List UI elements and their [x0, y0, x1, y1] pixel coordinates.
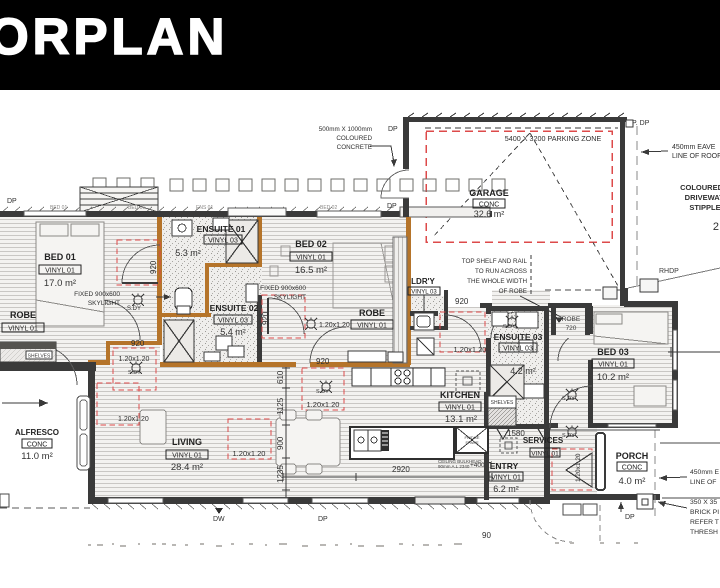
svg-text:COLOURED: COLOURED	[680, 183, 720, 192]
svg-text:LIVING: LIVING	[172, 437, 202, 447]
svg-text:CONC: CONC	[27, 442, 48, 449]
svg-text:90mm A.L 2340: 90mm A.L 2340	[438, 464, 470, 469]
svg-text:CONC: CONC	[479, 202, 500, 209]
svg-text:VINYL 01: VINYL 01	[8, 326, 38, 333]
svg-text:DP: DP	[625, 514, 635, 521]
svg-text:CONCRETE: CONCRETE	[337, 144, 372, 151]
svg-text:S.DY: S.DY	[127, 306, 141, 312]
svg-text:16.5 m²: 16.5 m²	[295, 265, 327, 276]
svg-text:+400: +400	[470, 462, 485, 469]
svg-text:1580: 1580	[507, 429, 525, 438]
svg-text:2920: 2920	[392, 465, 410, 474]
svg-text:SHELVES: SHELVES	[28, 354, 51, 360]
svg-text:DP: DP	[388, 126, 398, 133]
svg-text:500mm X 1000mm: 500mm X 1000mm	[319, 126, 372, 133]
svg-text:32.6 m²: 32.6 m²	[474, 209, 505, 219]
svg-text:BRICK PI: BRICK PI	[690, 509, 719, 516]
svg-text:DP: DP	[387, 203, 397, 210]
svg-text:90: 90	[482, 531, 491, 540]
svg-text:P. DP: P. DP	[632, 120, 650, 127]
svg-text:GARAGE: GARAGE	[469, 188, 509, 198]
svg-text:350 X 35: 350 X 35	[690, 499, 717, 506]
svg-text:VINYL 03: VINYL 03	[411, 290, 437, 296]
svg-text:5400 X 3200 PARKING ZONE: 5400 X 3200 PARKING ZONE	[505, 134, 602, 143]
svg-text:CONC: CONC	[622, 465, 643, 472]
svg-text:BED 01: BED 01	[44, 252, 76, 262]
svg-text:S.DY: S.DY	[316, 389, 329, 395]
svg-text:BED 03: BED 03	[597, 347, 629, 357]
svg-text:KITCHEN: KITCHEN	[440, 390, 480, 400]
svg-text:S.DY: S.DY	[503, 324, 516, 330]
svg-text:FIXED 900x600: FIXED 900x600	[260, 285, 306, 292]
svg-text:11.0 m²: 11.0 m²	[21, 451, 53, 462]
svg-text:COLOURED: COLOURED	[336, 135, 372, 142]
svg-text:DRIVEWAY: DRIVEWAY	[685, 193, 720, 202]
svg-text:LINE OF ROOF: LINE OF ROOF	[672, 153, 720, 160]
svg-text:VINYL 03: VINYL 03	[218, 318, 248, 325]
svg-text:920: 920	[149, 260, 158, 274]
svg-text:720: 720	[566, 325, 577, 332]
svg-text:THRESH: THRESH	[690, 529, 718, 536]
svg-text:2: 2	[713, 221, 719, 233]
svg-text:ROBE: ROBE	[10, 310, 36, 320]
svg-text:DP: DP	[318, 516, 328, 523]
svg-text:VINYL 03: VINYL 03	[503, 346, 533, 353]
svg-text:VINYL 01: VINYL 01	[491, 475, 521, 482]
svg-text:PORCH: PORCH	[616, 451, 649, 461]
svg-text:THE WHOLE WIDTH: THE WHOLE WIDTH	[467, 278, 527, 285]
svg-text:17.0 m²: 17.0 m²	[44, 278, 76, 289]
svg-text:RHDP: RHDP	[659, 268, 679, 275]
svg-text:BED 02: BED 02	[295, 239, 327, 249]
svg-text:1.20x1.20: 1.20x1.20	[119, 356, 150, 363]
svg-text:LINE OF: LINE OF	[690, 479, 716, 486]
svg-text:1.20x1.20: 1.20x1.20	[307, 400, 340, 409]
svg-text:SHELVES: SHELVES	[491, 400, 514, 406]
svg-text:920: 920	[261, 311, 270, 325]
svg-text:VINYL 01: VINYL 01	[45, 268, 75, 275]
svg-text:DP: DP	[7, 198, 17, 205]
svg-text:1.20x1.20: 1.20x1.20	[575, 453, 582, 482]
svg-text:ORPLAN: ORPLAN	[0, 8, 228, 65]
svg-text:ENSUITE 01: ENSUITE 01	[197, 224, 246, 234]
svg-text:VINYL 01: VINYL 01	[445, 405, 475, 412]
svg-text:ENSUITE 03: ENSUITE 03	[494, 332, 543, 342]
svg-text:450mm E: 450mm E	[690, 469, 720, 476]
svg-text:1235: 1235	[276, 465, 285, 483]
svg-text:TOP SHELF AND RAIL: TOP SHELF AND RAIL	[462, 258, 528, 265]
svg-text:BED 01: BED 01	[50, 205, 67, 211]
svg-text:1.20x1.20: 1.20x1.20	[233, 449, 266, 458]
svg-text:ENSUITE 02: ENSUITE 02	[210, 303, 259, 313]
svg-text:4.2 m²: 4.2 m²	[510, 366, 536, 376]
svg-text:S.DY: S.DY	[562, 396, 575, 402]
svg-text:VINYL 01: VINYL 01	[531, 451, 559, 458]
svg-text:920: 920	[131, 339, 145, 348]
svg-text:ROBE: ROBE	[359, 308, 385, 318]
svg-text:ROBE: ROBE	[562, 316, 581, 323]
svg-text:1.20x1.20: 1.20x1.20	[118, 416, 149, 423]
svg-text:ALFRESCO: ALFRESCO	[15, 428, 59, 437]
svg-text:LDR'Y: LDR'Y	[411, 277, 435, 286]
svg-text:VINYL 01: VINYL 01	[296, 255, 326, 262]
svg-text:BED 01: BED 01	[128, 205, 145, 211]
svg-text:900: 900	[276, 436, 285, 450]
svg-text:TO RUN ACROSS: TO RUN ACROSS	[475, 268, 527, 275]
svg-text:10.2 m²: 10.2 m²	[597, 372, 629, 383]
svg-text:S.DY: S.DY	[562, 433, 575, 439]
svg-text:VINYL 01: VINYL 01	[172, 453, 202, 460]
svg-text:ENTRY: ENTRY	[490, 461, 519, 471]
svg-text:ENS 01: ENS 01	[196, 205, 213, 211]
svg-text:1125: 1125	[276, 397, 285, 415]
svg-text:REFER T: REFER T	[690, 519, 719, 526]
svg-text:6.2 m²: 6.2 m²	[493, 484, 519, 494]
svg-text:450mm EAVE: 450mm EAVE	[672, 144, 716, 151]
svg-text:920: 920	[316, 357, 330, 366]
svg-text:OF ROBE: OF ROBE	[499, 288, 527, 295]
svg-text:4.0 m²: 4.0 m²	[619, 476, 646, 487]
svg-text:VINYL 01: VINYL 01	[357, 323, 387, 330]
svg-text:5.4 m²: 5.4 m²	[220, 327, 246, 337]
svg-text:28.4 m²: 28.4 m²	[171, 462, 203, 473]
svg-text:SKYLIGHT: SKYLIGHT	[88, 300, 120, 307]
svg-text:SKYLIGHT: SKYLIGHT	[274, 294, 306, 301]
svg-text:1.20x1.20: 1.20x1.20	[454, 345, 487, 354]
svg-text:DW: DW	[213, 516, 225, 523]
svg-text:610: 610	[276, 370, 285, 384]
svg-text:S.DY: S.DY	[128, 370, 141, 376]
svg-text:5.3 m²: 5.3 m²	[175, 248, 201, 258]
svg-text:920: 920	[455, 297, 469, 306]
svg-text:STIPPLED: STIPPLED	[689, 203, 720, 212]
svg-text:1.20x1.20: 1.20x1.20	[319, 322, 350, 329]
svg-text:VINYL 03: VINYL 03	[208, 238, 238, 245]
svg-text:13.1 m²: 13.1 m²	[445, 414, 477, 425]
svg-text:FIXED 900x600: FIXED 900x600	[74, 291, 120, 298]
svg-text:BED 02: BED 02	[320, 205, 337, 211]
svg-text:VINYL 01: VINYL 01	[598, 362, 628, 369]
svg-text:SPACE: SPACE	[465, 440, 479, 445]
